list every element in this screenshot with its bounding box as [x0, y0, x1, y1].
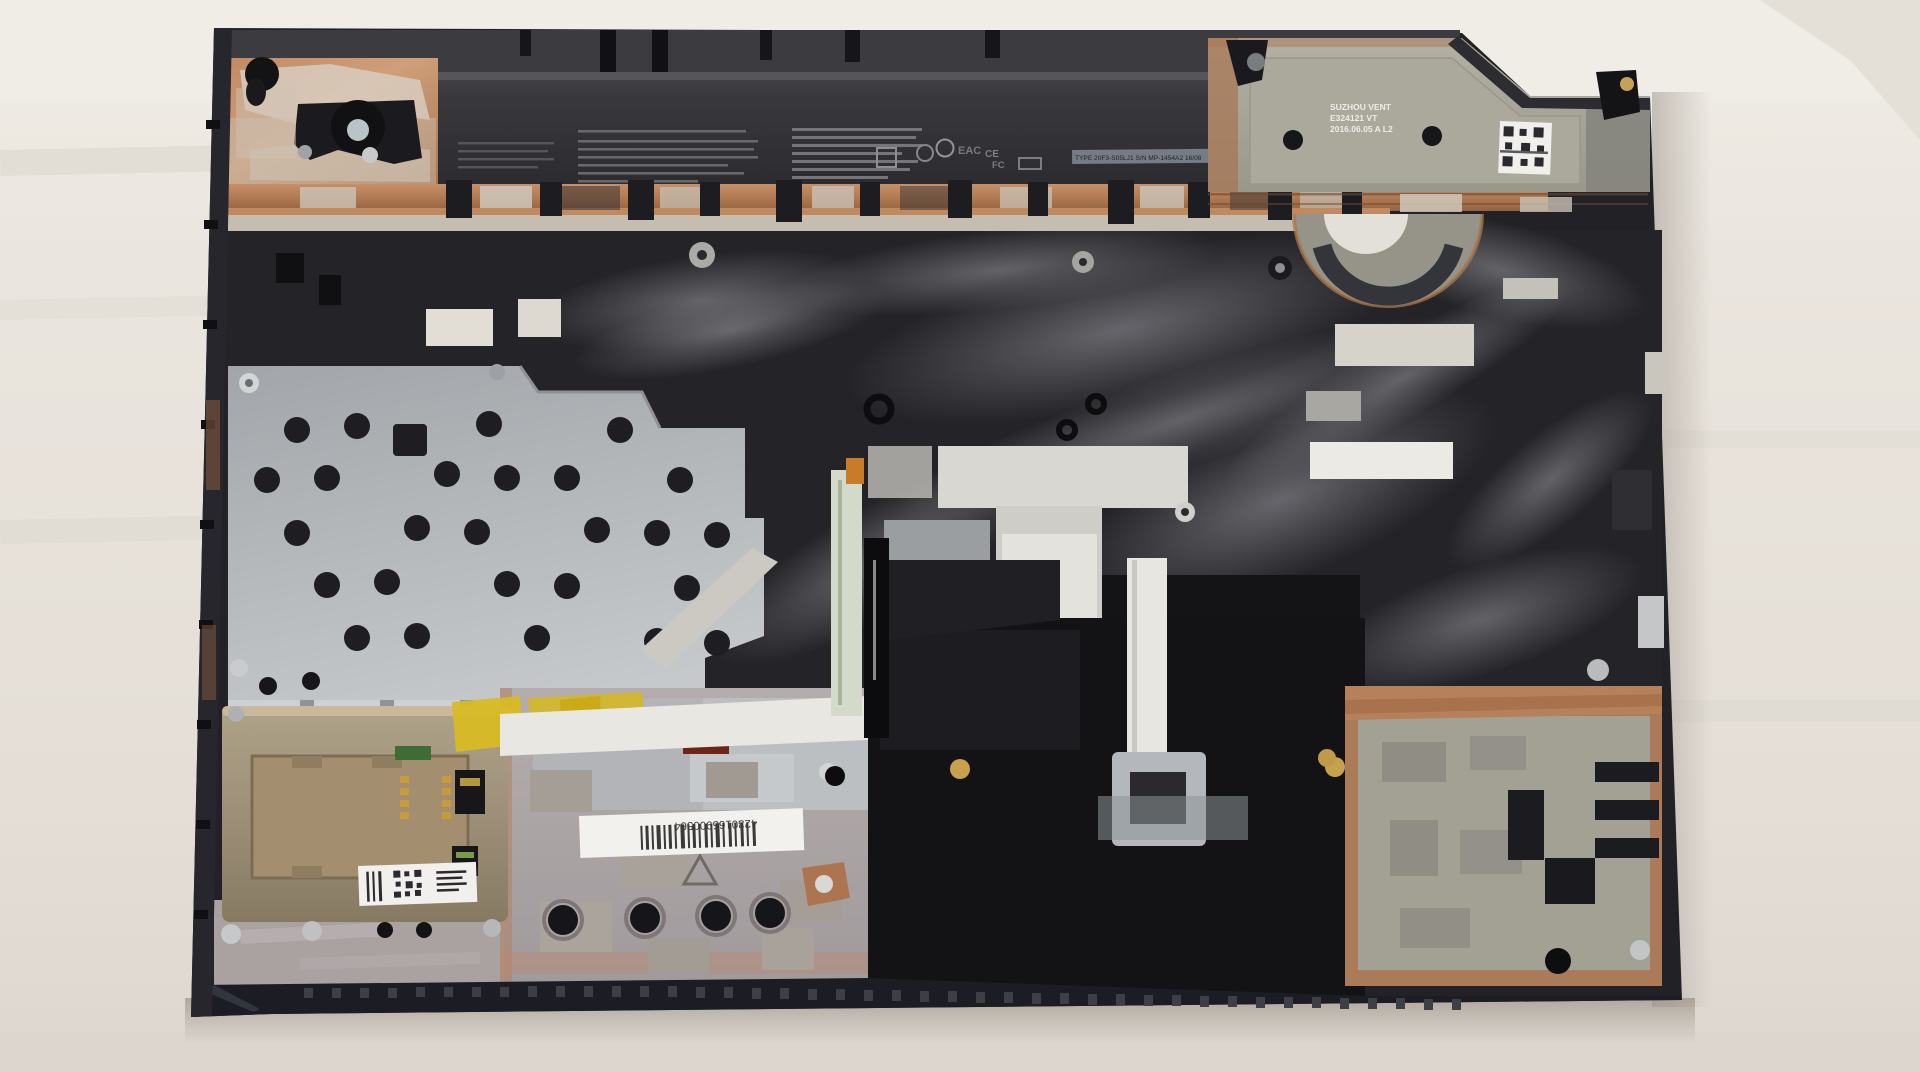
svg-text:CE: CE	[985, 149, 999, 160]
svg-text:2016.06.05 A L2: 2016.06.05 A L2	[1330, 124, 1393, 134]
svg-text:FC: FC	[992, 160, 1005, 171]
svg-text:EAC: EAC	[958, 145, 981, 157]
svg-text:TYPE 20F3-S05LJ1 S/N MP-1454A2: TYPE 20F3-S05LJ1 S/N MP-1454A2 16/08	[1075, 155, 1202, 162]
svg-text:E324121 VT: E324121 VT	[1330, 113, 1378, 123]
svg-text:SUZHOU VENT: SUZHOU VENT	[1330, 102, 1392, 112]
